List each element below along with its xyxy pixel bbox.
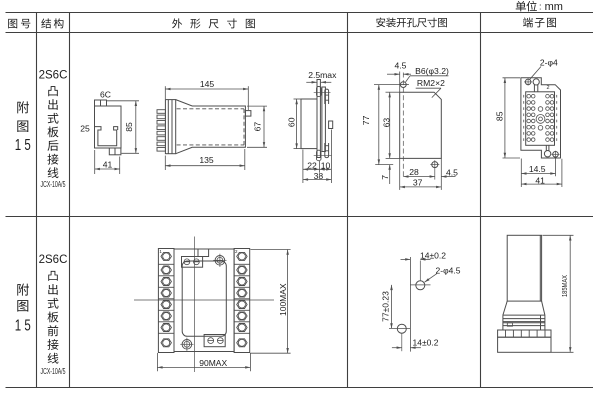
svg-text:100MAX: 100MAX <box>278 283 288 316</box>
svg-text:185MAX: 185MAX <box>560 275 569 297</box>
svg-text:4.5: 4.5 <box>446 167 458 177</box>
svg-text:145: 145 <box>200 79 215 89</box>
svg-text:14±0.2: 14±0.2 <box>413 338 439 348</box>
svg-text:2-φ4: 2-φ4 <box>540 58 558 68</box>
svg-text:41: 41 <box>103 159 113 169</box>
svg-text:14±0.2: 14±0.2 <box>420 250 446 260</box>
svg-text:63: 63 <box>381 118 391 128</box>
svg-text:14.5: 14.5 <box>529 164 546 174</box>
svg-text:2S6C: 2S6C <box>39 70 68 82</box>
svg-text:77: 77 <box>361 115 371 125</box>
svg-text:RM2×2: RM2×2 <box>417 78 445 88</box>
svg-text:2-φ4.5: 2-φ4.5 <box>436 265 461 275</box>
svg-text:77±0.23: 77±0.23 <box>381 291 391 322</box>
svg-text:1 5: 1 5 <box>15 318 31 335</box>
svg-text:67: 67 <box>252 122 262 132</box>
svg-text:7: 7 <box>380 175 390 180</box>
svg-text:2: 2 <box>235 249 238 254</box>
svg-text:90MAX: 90MAX <box>199 358 227 368</box>
svg-text:2.5max: 2.5max <box>308 70 337 80</box>
svg-text:2: 2 <box>546 85 549 91</box>
svg-text:6C: 6C <box>100 89 111 99</box>
svg-text:41: 41 <box>535 176 545 186</box>
svg-text:60: 60 <box>286 117 296 127</box>
svg-text::: : <box>539 2 542 12</box>
svg-text:4.5: 4.5 <box>395 60 407 70</box>
svg-text:mm: mm <box>545 1 563 13</box>
svg-text:85: 85 <box>495 111 505 121</box>
svg-text:25: 25 <box>80 123 90 133</box>
svg-text:2S6C: 2S6C <box>39 254 68 266</box>
svg-text:22: 22 <box>307 160 317 170</box>
svg-text:135: 135 <box>199 155 214 165</box>
svg-text:1 5: 1 5 <box>15 137 31 154</box>
svg-text:10: 10 <box>321 160 331 170</box>
svg-text:1: 1 <box>159 249 162 254</box>
svg-text:85: 85 <box>124 122 134 132</box>
svg-text:B6(φ3.2): B6(φ3.2) <box>415 66 449 76</box>
svg-text:38: 38 <box>314 171 324 181</box>
svg-text:JCX-10A/5: JCX-10A/5 <box>41 179 66 189</box>
svg-text:37: 37 <box>413 178 423 188</box>
svg-text:JCX-10A/5: JCX-10A/5 <box>41 366 66 376</box>
svg-text:28: 28 <box>409 167 419 177</box>
